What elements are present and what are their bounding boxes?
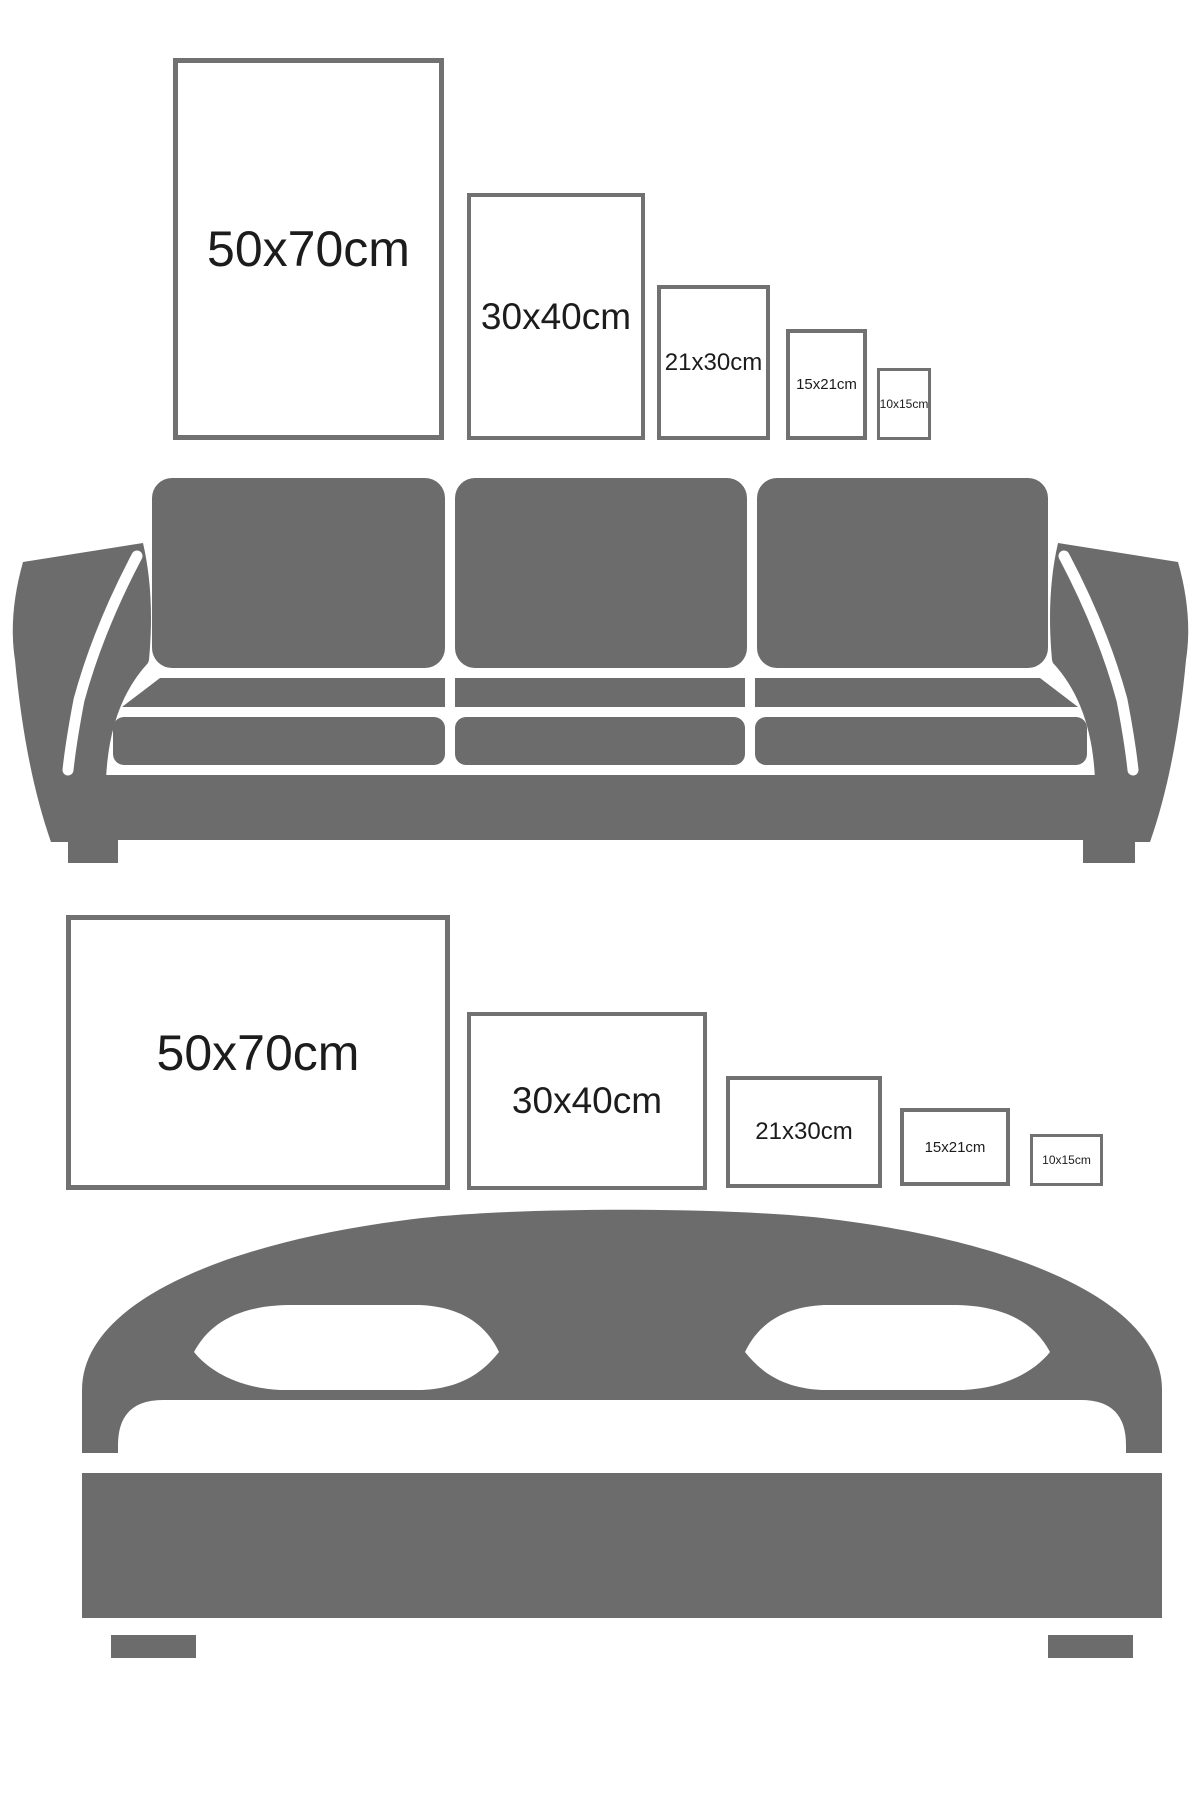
sofa-seat-cushion (755, 717, 1087, 765)
bed-base (82, 1473, 1162, 1618)
sofa-icon (0, 440, 1200, 890)
frame-size-label: 10x15cm (1042, 1153, 1091, 1167)
frame-size-label: 30x40cm (481, 296, 631, 338)
frame-size-label: 15x21cm (925, 1139, 986, 1156)
sofa-foot (68, 840, 118, 863)
sofa-seat-deck (455, 678, 745, 707)
sofa-base (50, 775, 1151, 840)
sofa-seat-cushion (455, 717, 745, 765)
frame-size-label: 10x15cm (880, 397, 929, 411)
frame-size-label: 21x30cm (755, 1118, 852, 1146)
frame-size-label: 21x30cm (665, 349, 762, 377)
landscape-frame-30x40: 30x40cm (467, 1012, 707, 1190)
bed-foot (111, 1635, 196, 1658)
bed-mattress (118, 1400, 1126, 1466)
size-guide-infographic: 50x70cm 30x40cm 21x30cm 15x21cm 10x15cm (0, 0, 1200, 1800)
frame-size-label: 15x21cm (796, 376, 857, 393)
bed-pillow (194, 1305, 499, 1390)
portrait-frame-10x15: 10x15cm (877, 368, 931, 440)
bed-pillow (745, 1305, 1050, 1390)
portrait-frame-50x70: 50x70cm (173, 58, 444, 440)
bed-icon (0, 1200, 1200, 1800)
sofa-back-cushion (757, 478, 1048, 668)
landscape-frame-15x21: 15x21cm (900, 1108, 1010, 1186)
landscape-frame-10x15: 10x15cm (1030, 1134, 1103, 1186)
portrait-frame-15x21: 15x21cm (786, 329, 867, 440)
landscape-frame-50x70: 50x70cm (66, 915, 450, 1190)
frame-size-label: 30x40cm (512, 1080, 662, 1122)
frame-size-label: 50x70cm (157, 1024, 360, 1082)
sofa-back-cushion (455, 478, 747, 668)
portrait-frame-30x40: 30x40cm (467, 193, 645, 440)
frame-size-label: 50x70cm (207, 220, 410, 278)
sofa-seat-deck (755, 678, 1078, 707)
portrait-frame-21x30: 21x30cm (657, 285, 770, 440)
landscape-frame-21x30: 21x30cm (726, 1076, 882, 1188)
sofa-seat-cushion (113, 717, 445, 765)
bed-foot (1048, 1635, 1133, 1658)
sofa-back-cushion (152, 478, 445, 668)
sofa-seat-deck (122, 678, 445, 707)
sofa-foot (1083, 840, 1135, 863)
